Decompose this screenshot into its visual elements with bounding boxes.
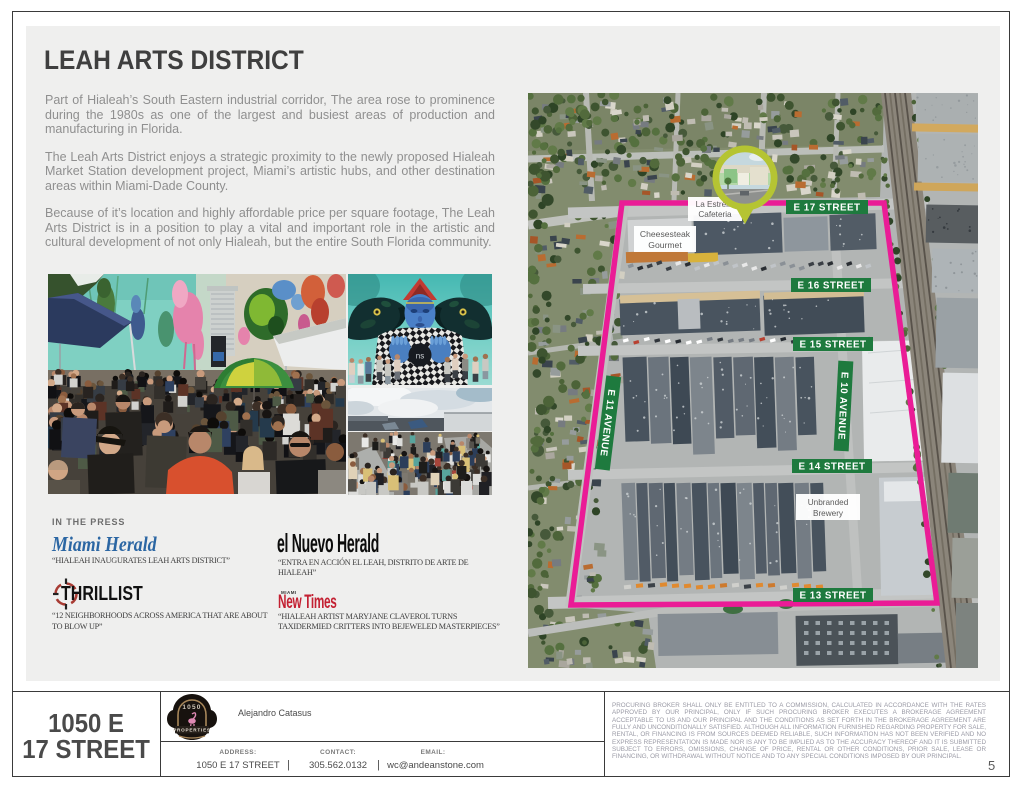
svg-text:Cafeteria: Cafeteria xyxy=(698,210,732,219)
svg-text:E 16 STREET: E 16 STREET xyxy=(797,281,864,292)
svg-text:E 17 STREET: E 17 STREET xyxy=(793,203,860,214)
svg-text:E 15 STREET: E 15 STREET xyxy=(799,340,866,351)
svg-text:Brewery: Brewery xyxy=(813,509,844,518)
svg-text:E 13 STREET: E 13 STREET xyxy=(799,591,866,602)
svg-text:Cheesesteak: Cheesesteak xyxy=(640,229,691,239)
svg-text:1050: 1050 xyxy=(182,704,201,711)
svg-text:E 14 STREET: E 14 STREET xyxy=(798,462,865,473)
svg-text:Gourmet: Gourmet xyxy=(648,240,682,250)
svg-text:PROPERTIES: PROPERTIES xyxy=(173,728,211,733)
svg-text:ns: ns xyxy=(416,352,424,361)
svg-text:Unbranded: Unbranded xyxy=(808,498,849,507)
